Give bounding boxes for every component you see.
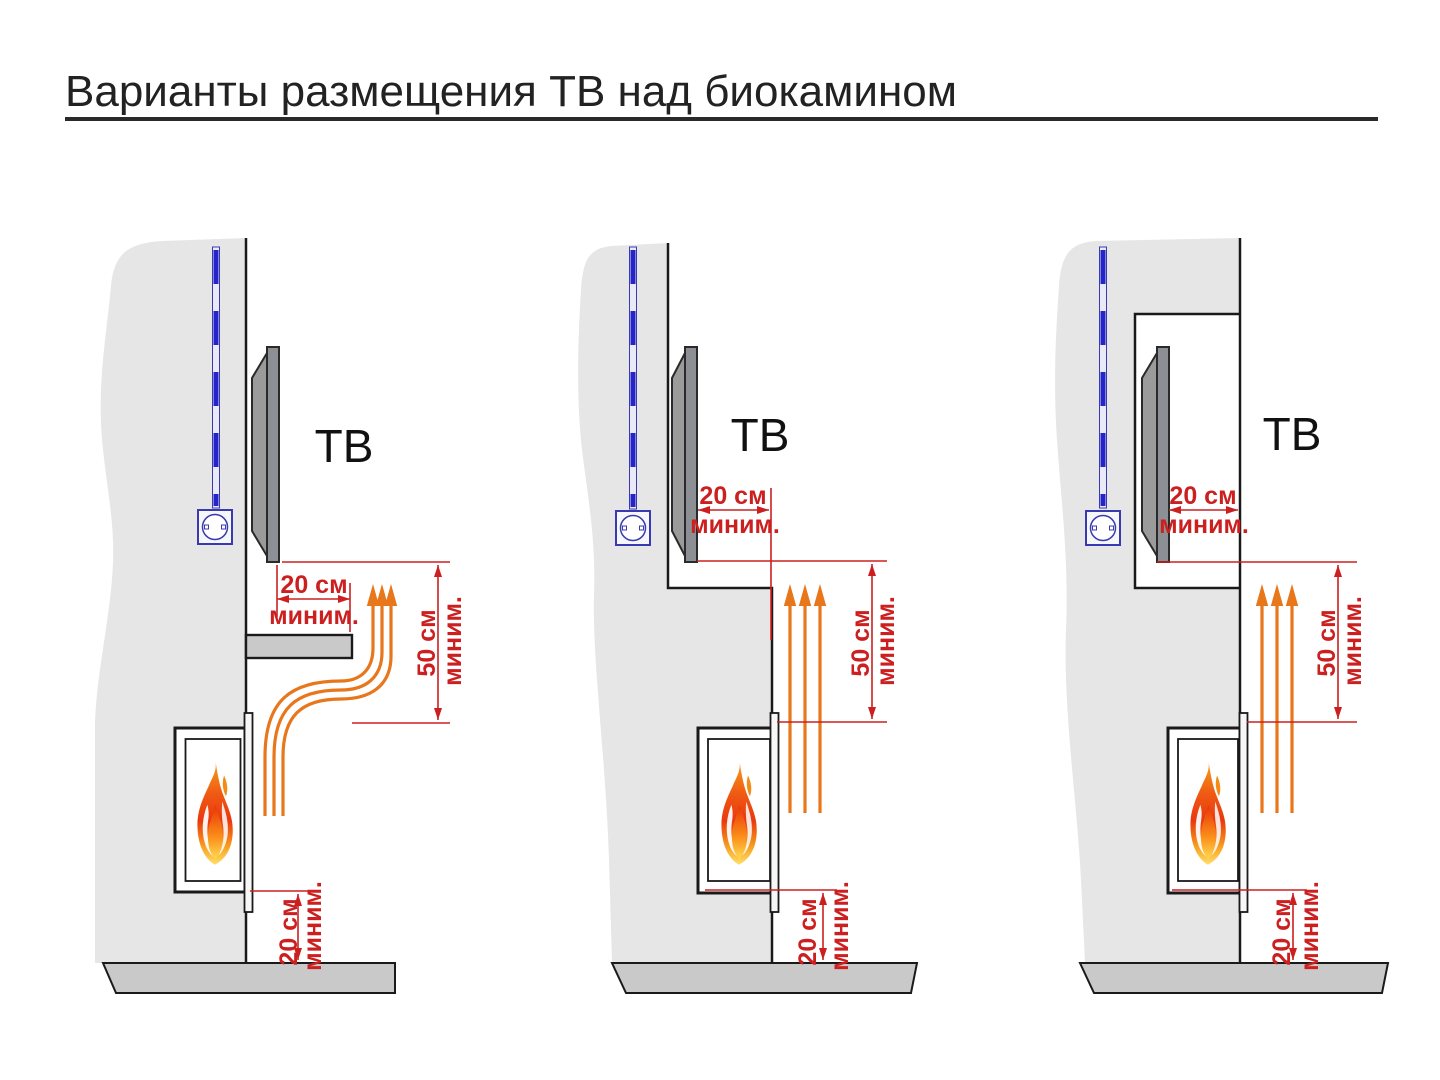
- power-outlet-icon: [1086, 511, 1120, 545]
- dimension-50cm-height: 50 см миним.: [1247, 565, 1367, 722]
- svg-text:20 см: 20 см: [1268, 898, 1296, 965]
- title-underline: [65, 117, 1378, 121]
- diagram-tv-on-stepped-wall: ТВ 20 см миним. 50 см миним.: [578, 243, 917, 993]
- svg-text:20 см: 20 см: [280, 571, 347, 599]
- power-cable: [213, 247, 220, 508]
- power-outlet-icon: [616, 511, 650, 545]
- floor-slab: [1080, 963, 1388, 993]
- dimension-20cm-floor: 20 см миним.: [250, 881, 327, 971]
- floor-slab: [612, 963, 917, 993]
- diagram-canvas: Варианты размещения ТВ над биокамином ТВ: [0, 0, 1440, 1080]
- svg-text:миним.: миним.: [1296, 881, 1324, 971]
- svg-text:миним.: миним.: [690, 511, 780, 539]
- heat-flow-arrows: [1262, 606, 1292, 813]
- power-cable: [1100, 247, 1107, 508]
- firebox-glass-panel: [1240, 713, 1248, 912]
- tv-label: ТВ: [731, 409, 790, 461]
- svg-text:миним.: миним.: [299, 881, 327, 971]
- svg-text:миним.: миним.: [1159, 511, 1249, 539]
- power-cable: [630, 247, 637, 509]
- diagram-tv-open-wall-with-shelf: ТВ 20 см миним. 50 см миним.: [95, 238, 467, 993]
- svg-text:миним.: миним.: [269, 602, 359, 630]
- svg-text:20 см: 20 см: [699, 482, 766, 510]
- svg-text:20 см: 20 см: [1169, 482, 1236, 510]
- firebox-glass-panel: [245, 713, 253, 912]
- svg-text:миним.: миним.: [1339, 596, 1367, 686]
- tv-label: ТВ: [1263, 408, 1322, 460]
- svg-text:миним.: миним.: [872, 596, 900, 686]
- firebox-glass-panel: [771, 713, 779, 912]
- dimension-50cm-height: 50 см миним.: [352, 565, 467, 723]
- heat-flow-arrows: [790, 606, 820, 813]
- svg-text:50 см: 50 см: [413, 609, 441, 676]
- dimension-50cm-height: 50 см миним.: [777, 564, 900, 722]
- diagram-tv-recessed-in-niche: ТВ 20 см миним. 50 см миним. 20 с: [1055, 238, 1388, 993]
- page-title: Варианты размещения ТВ над биокамином: [65, 67, 957, 116]
- tv-side-view: [252, 347, 279, 562]
- svg-text:50 см: 50 см: [847, 609, 875, 676]
- svg-text:50 см: 50 см: [1313, 609, 1341, 676]
- power-outlet-icon: [198, 510, 232, 544]
- svg-text:20 см: 20 см: [794, 898, 822, 965]
- floor-slab: [103, 963, 395, 993]
- svg-text:миним.: миним.: [439, 596, 467, 686]
- mantel-shelf: [246, 635, 352, 658]
- tv-label: ТВ: [315, 420, 374, 472]
- svg-text:миним.: миним.: [826, 881, 854, 971]
- page: Варианты размещения ТВ над биокамином ТВ: [0, 0, 1440, 1080]
